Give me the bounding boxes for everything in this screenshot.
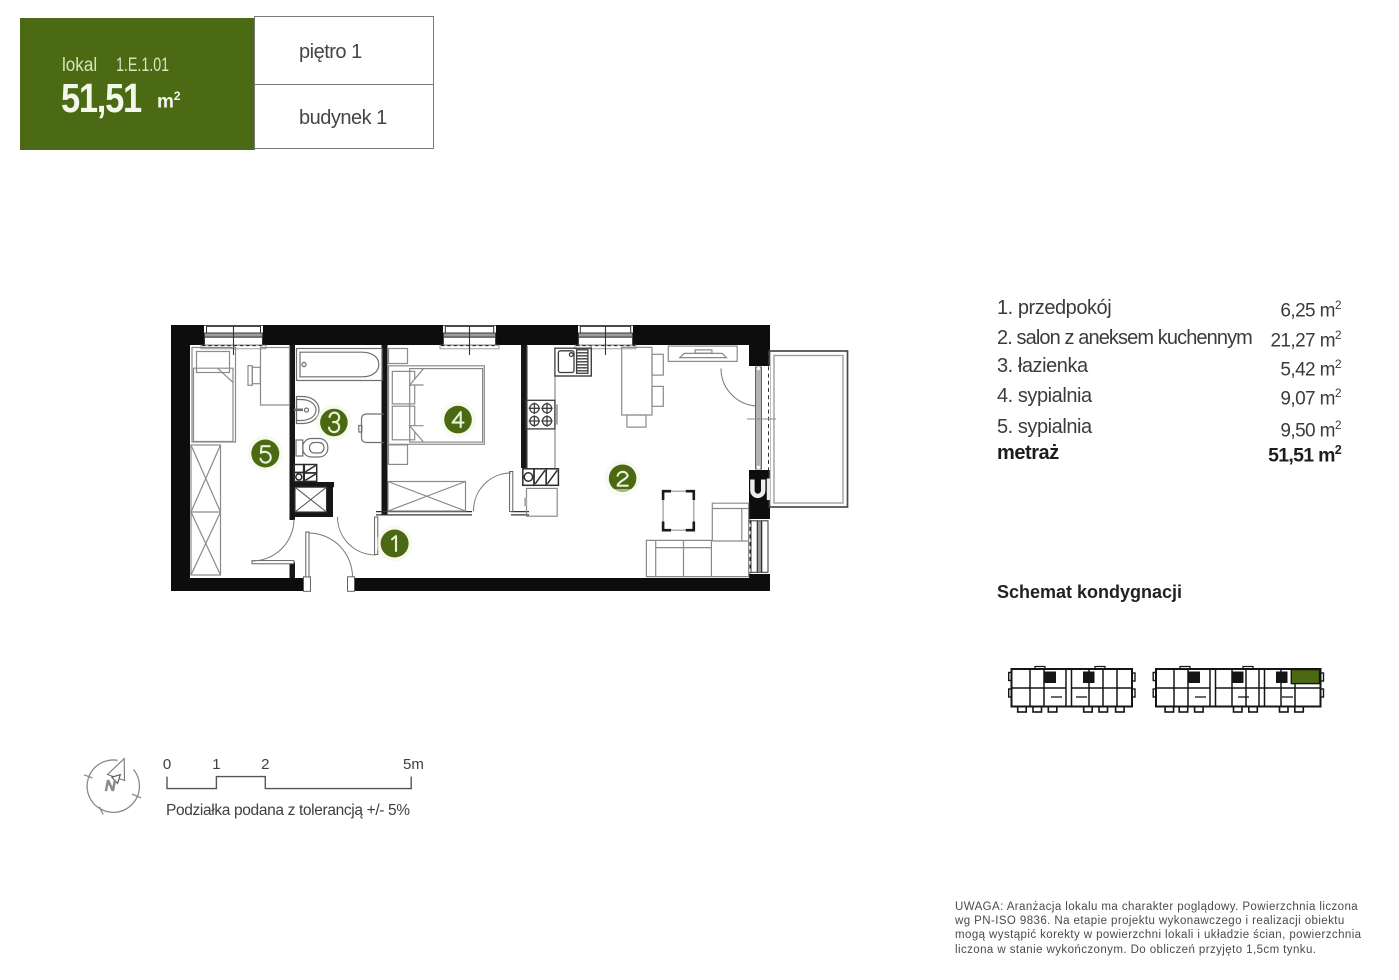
svg-text:0: 0 bbox=[163, 756, 171, 773]
svg-text:N: N bbox=[105, 779, 116, 795]
svg-text:5m: 5m bbox=[403, 756, 424, 773]
svg-text:2: 2 bbox=[261, 756, 269, 773]
svg-text:1: 1 bbox=[212, 756, 220, 773]
